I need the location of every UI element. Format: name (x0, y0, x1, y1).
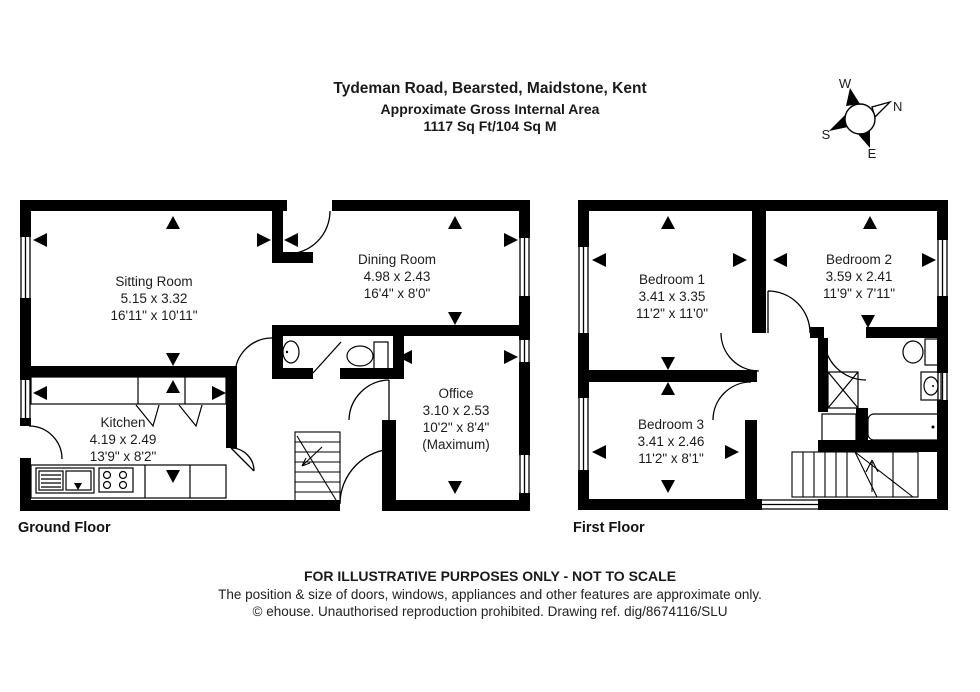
arrow-right (504, 233, 518, 247)
arrow-left (33, 233, 47, 247)
arrow-right (212, 386, 226, 400)
room-label-dining-room: Dining Room 4.98 x 2.43 16'4" x 8'0" (358, 251, 436, 302)
first-floor-plan-drawing (570, 193, 960, 523)
room-metric: 5.15 x 3.32 (110, 290, 197, 307)
compass-circle (845, 104, 875, 134)
arrow-down (661, 357, 675, 370)
arrow-left (33, 386, 47, 400)
bedroom3-door-arc (713, 382, 751, 420)
wc-door-leaf (313, 342, 341, 373)
room-label-bedroom-3: Bedroom 3 3.41 x 2.46 11'2" x 8'1" (638, 416, 705, 467)
arrow-left (592, 253, 606, 267)
disclaimer-heading: FOR ILLUSTRATIVE PURPOSES ONLY - NOT TO … (0, 568, 980, 584)
room-name: Bedroom 2 (823, 251, 895, 268)
room-imperial: 11'2" x 11'0" (636, 305, 708, 322)
shower-icon (828, 372, 858, 408)
arrow-down (861, 315, 875, 328)
room-metric: 3.10 x 2.53 (422, 402, 490, 419)
bedroom1-door-arc (721, 333, 759, 371)
kitchen-sink-icon (36, 468, 94, 493)
copyright-drawing-ref: © ehouse. Unauthorised reproduction proh… (0, 604, 980, 619)
back-door-arc (29, 426, 62, 459)
wc-basin-icon (283, 341, 299, 363)
room-label-office: Office 3.10 x 2.53 10'2" x 8'4" (Maximum… (422, 385, 490, 453)
room-imperial: 11'2" x 8'1" (638, 450, 705, 467)
kitchen-door-arc (231, 448, 254, 471)
room-metric: 3.59 x 2.41 (823, 268, 895, 285)
arrow-up (863, 216, 877, 229)
disclaimer-text: The position & size of doors, windows, a… (0, 587, 980, 602)
ground-staircase (295, 432, 340, 503)
arrow-up (661, 382, 675, 395)
room-metric: 3.41 x 2.46 (638, 433, 705, 450)
room-imperial: 16'11" x 10'11" (110, 307, 197, 324)
room-label-bedroom-2: Bedroom 2 3.59 x 2.41 11'9" x 7'11" (823, 251, 895, 302)
room-name: Office (422, 385, 490, 402)
first-floor-door-arcs (713, 291, 866, 420)
sitting-room-door-arc (235, 338, 272, 375)
front-hall-door-arc (287, 211, 330, 254)
arrow-down (661, 480, 675, 493)
arrow-up (448, 216, 462, 229)
arrow-right (725, 445, 739, 459)
compass-rose: W N S E (805, 55, 935, 170)
room-name: Bedroom 1 (636, 271, 708, 288)
compass-west: W (839, 76, 852, 91)
room-name: Dining Room (358, 251, 436, 268)
first-staircase (792, 452, 918, 497)
room-label-sitting-room: Sitting Room 5.15 x 3.32 16'11" x 10'11" (110, 273, 197, 324)
arrow-down (166, 353, 180, 366)
ground-floor-title: Ground Floor (18, 520, 111, 536)
compass-east: E (868, 146, 877, 161)
office-door-arc (349, 380, 389, 420)
room-name: Kitchen (90, 414, 157, 431)
room-imperial: 16'4" x 8'0" (358, 285, 436, 302)
arrow-down (448, 312, 462, 325)
room-metric: 4.98 x 2.43 (358, 268, 436, 285)
room-name: Sitting Room (110, 273, 197, 290)
airing-cupboard (822, 414, 856, 444)
compass-south: S (822, 127, 831, 142)
bathtub-icon (868, 414, 943, 440)
arrow-right (257, 233, 271, 247)
room-imperial: 10'2" x 8'4" (422, 419, 490, 436)
room-label-bedroom-1: Bedroom 1 3.41 x 3.35 11'2" x 11'0" (636, 271, 708, 322)
arrow-up (661, 216, 675, 229)
ground-floor-plan-drawing (10, 193, 538, 523)
room-label-kitchen: Kitchen 4.19 x 2.49 13'9" x 8'2" (90, 414, 157, 465)
compass-north: N (893, 99, 902, 114)
arrow-left (592, 445, 606, 459)
room-metric: 4.19 x 2.49 (90, 431, 157, 448)
room-imperial: 11'9" x 7'11" (823, 285, 895, 302)
arrow-down (166, 470, 180, 483)
arrow-up (166, 380, 180, 393)
unit-door-mark (179, 405, 202, 426)
arrow-down (448, 481, 462, 494)
wc-toilet-icon (347, 342, 388, 370)
first-floor-title: First Floor (573, 520, 645, 536)
arrow-right (922, 253, 936, 267)
room-note: (Maximum) (422, 436, 490, 453)
bathroom-door-arc (824, 338, 866, 380)
room-name: Bedroom 3 (638, 416, 705, 433)
arrow-right (504, 350, 518, 364)
room-metric: 3.41 x 3.35 (636, 288, 708, 305)
bedroom2-door-arc (768, 291, 810, 333)
hob-icon (99, 468, 133, 492)
arrow-left (773, 253, 787, 267)
room-imperial: 13'9" x 8'2" (90, 448, 157, 465)
arrow-up (166, 216, 180, 229)
arrow-right (733, 253, 747, 267)
arrow-left (284, 233, 298, 247)
bathroom-toilet-icon (903, 339, 939, 365)
floorplan-page: { "header": { "title": "Tydeman Road, Be… (0, 0, 980, 692)
